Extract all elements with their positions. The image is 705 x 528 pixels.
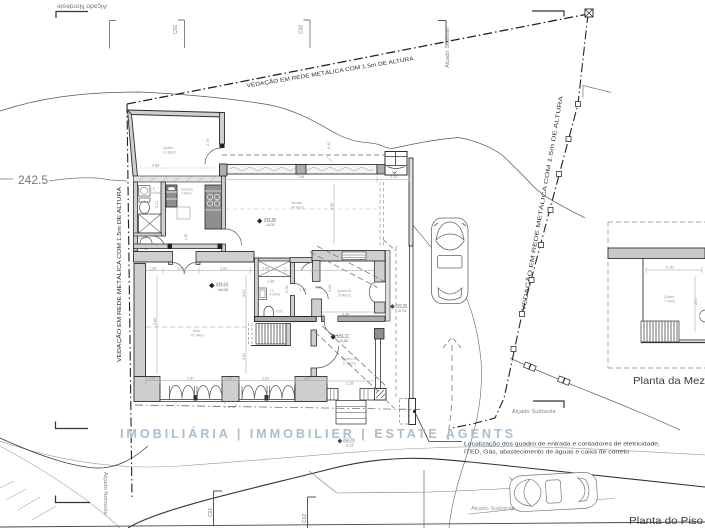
svg-text:3.86: 3.86 [152, 164, 159, 168]
svg-text:Alçado Sudoeste: Alçado Sudoeste [512, 409, 556, 415]
svg-text:ITED, Gás, abastecimento de ág: ITED, Gás, abastecimento de águas e caix… [464, 450, 629, 456]
svg-text:243.38: 243.38 [264, 218, 276, 222]
svg-text:2.87: 2.87 [262, 377, 269, 381]
svg-text:242.5: 242.5 [18, 173, 48, 187]
svg-text:Sala: Sala [193, 329, 200, 333]
svg-text:(9.80m2): (9.80m2) [338, 294, 351, 298]
svg-text:41.44m2: 41.44m2 [191, 334, 204, 338]
svg-text:1.98: 1.98 [149, 267, 156, 271]
svg-text:Planta da Mez: Planta da Mez [633, 375, 705, 387]
svg-text:-0.28: -0.28 [339, 339, 348, 343]
svg-text:46.41m2: 46.41m2 [291, 206, 304, 210]
svg-text:Quarto 02: Quarto 02 [337, 289, 351, 293]
svg-text:0.75: 0.75 [276, 310, 282, 314]
svg-text:2.30: 2.30 [666, 265, 675, 270]
svg-text:0.42: 0.42 [327, 142, 331, 149]
svg-text:1.98: 1.98 [267, 280, 274, 284]
svg-text:C01: C01 [208, 508, 214, 517]
svg-text:10.86m2: 10.86m2 [163, 151, 176, 155]
svg-text:(7.50m2): (7.50m2) [343, 362, 356, 366]
svg-text:4.90: 4.90 [330, 203, 334, 210]
svg-text:2.21: 2.21 [155, 201, 159, 208]
svg-text:-0.74: -0.74 [398, 309, 407, 313]
svg-text:4.60: 4.60 [153, 318, 157, 325]
svg-text:Arrumos: Arrumos [138, 236, 150, 240]
svg-text:2.79: 2.79 [206, 139, 210, 146]
svg-text:1.02: 1.02 [303, 377, 310, 381]
svg-text:Alçado Noroeste: Alçado Noroeste [102, 472, 108, 515]
svg-text:1.20: 1.20 [390, 175, 397, 179]
svg-text:-1.12: -1.12 [345, 444, 354, 448]
svg-text:C02: C02 [299, 25, 305, 34]
svg-text:3.01: 3.01 [242, 290, 246, 297]
svg-text:3.03: 3.03 [328, 285, 332, 292]
svg-text:1.02: 1.02 [148, 377, 155, 381]
svg-text:245.12: 245.12 [216, 281, 229, 286]
svg-text:243.72: 243.72 [337, 334, 349, 338]
svg-text:2.81: 2.81 [220, 267, 227, 271]
svg-text:1.98: 1.98 [262, 267, 269, 271]
svg-text:7.44m2: 7.44m2 [181, 192, 192, 196]
svg-text:2.78: 2.78 [285, 286, 289, 293]
svg-text:Quarto: Quarto [163, 146, 173, 150]
svg-text:Terraço: Terraço [291, 201, 302, 205]
svg-text:1.30: 1.30 [184, 234, 188, 240]
svg-text:2.51: 2.51 [242, 353, 246, 360]
svg-text:-0.02: -0.02 [266, 223, 275, 227]
svg-text:7.43m2: 7.43m2 [664, 300, 675, 304]
svg-text:2.87: 2.87 [187, 377, 194, 381]
svg-text:Quarto: Quarto [664, 295, 674, 299]
svg-text:3.01: 3.01 [694, 298, 698, 305]
svg-text:5.00m2: 5.00m2 [151, 191, 162, 195]
svg-text:±0.00: ±0.00 [218, 287, 229, 292]
svg-text:4.30m2: 4.30m2 [270, 293, 281, 297]
svg-text:2.28: 2.28 [346, 382, 353, 386]
svg-text:Planta do Piso: Planta do Piso [629, 515, 703, 527]
svg-text:0.63: 0.63 [225, 377, 232, 381]
svg-text:Localização dos quadro de entr: Localização dos quadro de entrada e cont… [464, 442, 660, 448]
svg-text:1.40: 1.40 [177, 267, 184, 271]
svg-text:C02: C02 [302, 514, 308, 523]
svg-text:C01: C01 [173, 25, 179, 34]
svg-text:Alçado Sudoeste: Alçado Sudoeste [471, 506, 515, 512]
svg-text:Alçado Nordeste: Alçado Nordeste [56, 3, 107, 10]
svg-text:VEDAÇÃO EM REDE METÁLICA COM 1: VEDAÇÃO EM REDE METÁLICA COM 1.5m DE ALT… [116, 187, 123, 362]
svg-text:1.10: 1.10 [299, 288, 306, 292]
svg-text:IMOBILIÁRIA | IMMOBILIER | EST: IMOBILIÁRIA | IMMOBILIER | ESTATE AGENTS [120, 426, 516, 441]
svg-text:7.88: 7.88 [297, 175, 304, 179]
svg-text:242.58: 242.58 [396, 304, 408, 308]
